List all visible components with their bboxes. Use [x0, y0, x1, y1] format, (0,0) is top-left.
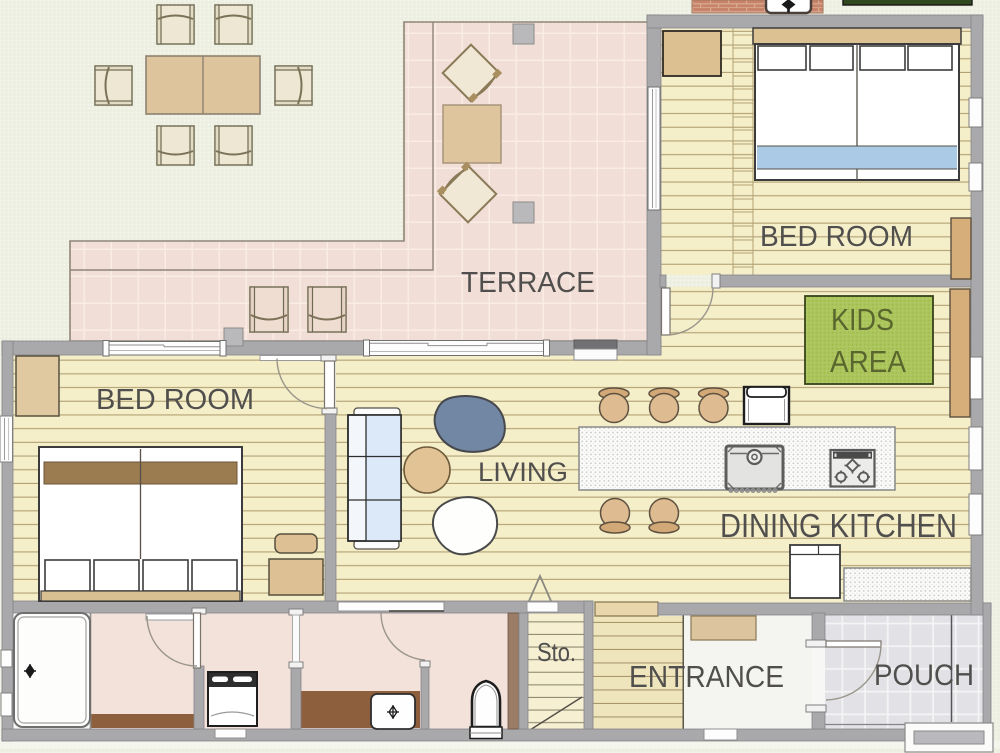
svg-text:POUCH: POUCH	[874, 659, 974, 692]
svg-text:KIDS: KIDS	[831, 302, 894, 337]
svg-text:Sto.: Sto.	[537, 637, 576, 667]
svg-text:DINING KITCHEN: DINING KITCHEN	[720, 507, 957, 544]
svg-text:BED ROOM: BED ROOM	[760, 221, 913, 253]
svg-text:TERRACE: TERRACE	[461, 267, 595, 299]
svg-text:BED ROOM: BED ROOM	[96, 384, 254, 416]
svg-text:AREA: AREA	[830, 344, 906, 379]
svg-text:LIVING: LIVING	[478, 457, 568, 487]
svg-text:ENTRANCE: ENTRANCE	[629, 659, 784, 694]
